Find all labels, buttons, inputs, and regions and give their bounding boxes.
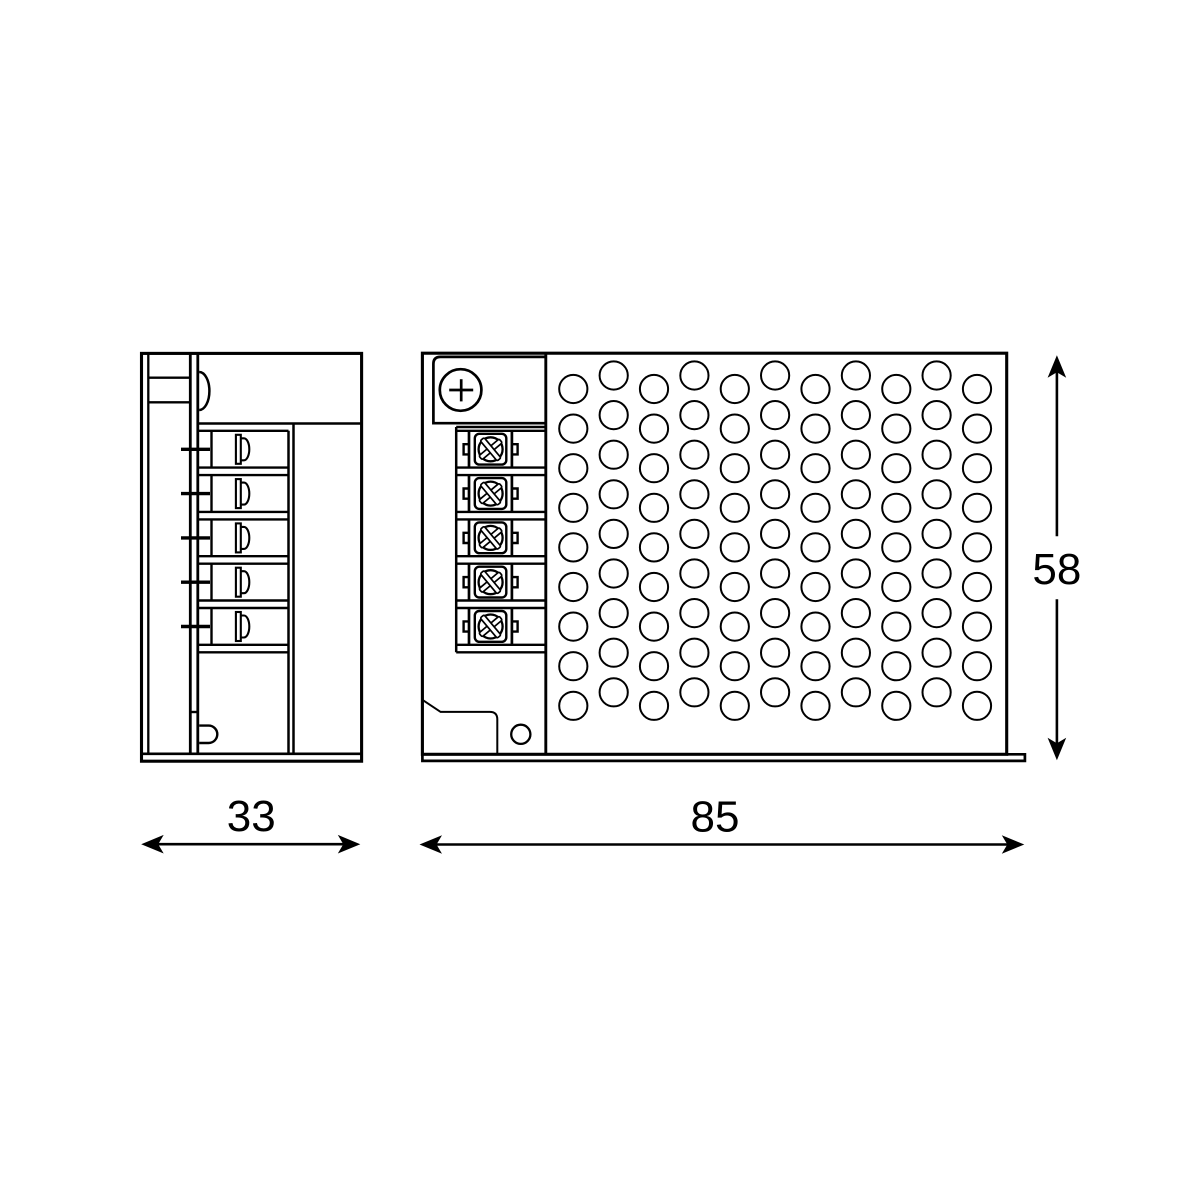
svg-text:85: 85 (691, 793, 740, 842)
svg-text:58: 58 (1032, 545, 1081, 594)
svg-text:33: 33 (227, 792, 276, 841)
